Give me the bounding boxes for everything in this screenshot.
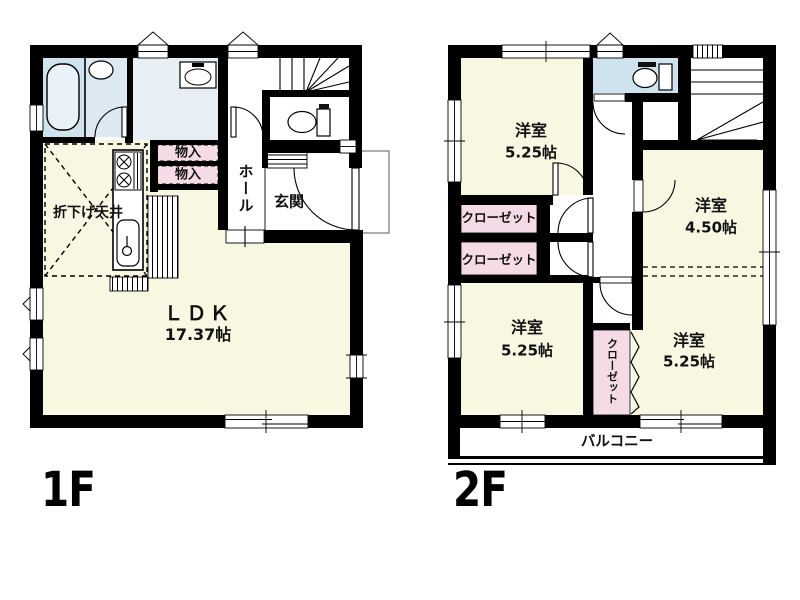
bedroom-sw-size-label: 5.25帖	[501, 344, 553, 359]
floor2-tag: 2F	[453, 465, 507, 513]
floorplan-canvas: ＬＤＫ 17.37帖 折下げ天井 物入 物入 ホール 玄関 1F 洋室 5.25…	[0, 0, 800, 600]
vanity-icon	[180, 62, 216, 88]
lowered-ceiling-label: 折下げ天井	[53, 206, 123, 220]
entrance-label: 玄関	[274, 195, 304, 210]
closet-a-door-arc	[558, 198, 593, 233]
closet-a-label: クローゼット	[461, 212, 536, 225]
vestibule-door-arc	[600, 277, 632, 315]
bedroom-se-name-label: 洋室	[673, 333, 705, 349]
closet-c-label: クローゼット	[607, 338, 618, 404]
kitchen-sink-icon	[117, 220, 139, 266]
bedroom-sw-name-label: 洋室	[511, 320, 543, 336]
closet-b-label: クローゼット	[461, 254, 536, 267]
floor1-tag: 1F	[41, 465, 95, 513]
bedroom-e-size-label: 4.50帖	[685, 221, 737, 236]
floor1-plan	[23, 32, 389, 433]
ldk-name-label: ＬＤＫ	[164, 303, 233, 323]
balcony-label: バルコニー	[581, 435, 653, 450]
bedroom-e-name-label: 洋室	[695, 198, 727, 214]
washing-machine-icon	[89, 61, 113, 79]
closet-b-door-arc	[558, 242, 593, 277]
hall-label: ホール	[238, 164, 253, 215]
floorplan-drawing	[0, 0, 800, 600]
bedroom-e	[643, 150, 763, 280]
bedroom-se-size-label: 5.25帖	[663, 355, 715, 370]
kitchen-counter	[148, 196, 178, 278]
bathtub-icon	[47, 64, 79, 130]
bedroom-nw-size-label: 5.25帖	[505, 146, 557, 161]
kitchen-counter-end	[110, 277, 148, 291]
stair-landing-opening	[693, 45, 723, 58]
storage-lower-label: 物入	[175, 169, 201, 182]
storage-upper-label: 物入	[175, 147, 201, 160]
staircase-2f	[691, 70, 763, 140]
toilet-door-arc-2f	[593, 94, 625, 134]
ldk-size-label: 17.37帖	[165, 327, 232, 343]
bedroom-nw-name-label: 洋室	[515, 123, 547, 139]
toilet-icon-2f	[633, 62, 672, 90]
